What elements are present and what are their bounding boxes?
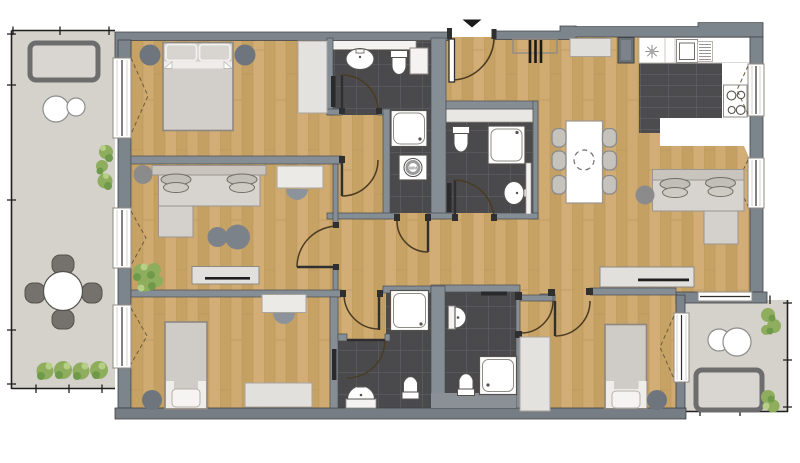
svg-text:WM: WM [409,166,417,171]
